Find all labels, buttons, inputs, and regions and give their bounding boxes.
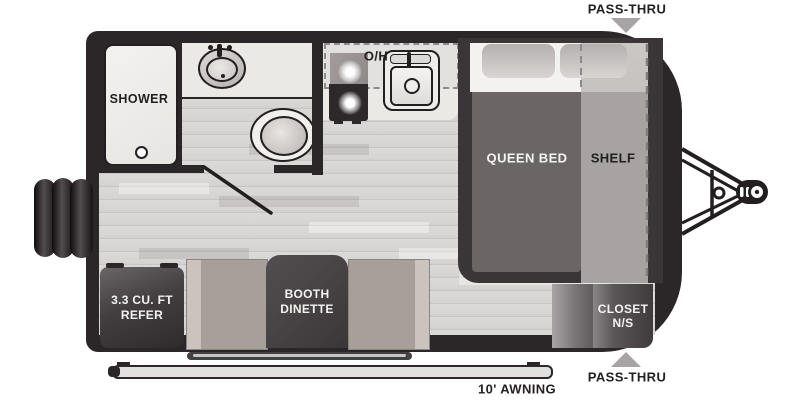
shower-drain [135,146,148,159]
floor-plank-highlight [119,183,209,194]
hitch-jack-wheel [714,188,724,198]
pillow-left [482,44,555,78]
bathroom-faucet-handle-right [227,45,232,50]
stove-burner-top [338,60,362,84]
shelf-label: SHELF [591,151,636,166]
dinette-bench-left [186,259,268,350]
awning-end-cap [108,366,120,377]
refrigerator-label: 3.3 CU. FT REFER [100,267,184,348]
hitch-ball-center [755,190,759,194]
refrigerator-label-line2: REFER [121,308,163,322]
kitchen-faucet [407,52,411,68]
pass-thru-label-top: PASS-THRU [588,2,666,17]
hitch-coupler-slot [746,187,750,197]
shower-label: SHOWER [110,92,169,106]
booth-dinette-label: BOOTH DINETTE [266,255,348,348]
hitch-ball [750,185,765,200]
stove-foot-right [352,120,361,124]
pass-thru-arrow-bottom [611,352,641,367]
bathroom-faucet-handle-left [208,45,213,50]
closet-label-line2: N/S [613,316,634,330]
entry-step [552,284,593,348]
awning-bracket-left [117,362,130,365]
rv-floorplan: PASS-THRU PASS-THRU 10' AWNING SHOWER O/… [0,0,800,400]
floor-plank-shade [139,248,249,259]
bathroom-wall-bottom-right [274,165,312,173]
awning-label: 10' AWNING [478,382,556,397]
bathroom-wall-bottom-left [99,165,204,173]
floor-plank-highlight [309,222,429,233]
pillow-right [560,44,627,78]
floor-plank-shade [219,196,359,207]
toilet-bowl [260,116,308,156]
awning-bar [112,365,553,379]
pass-thru-arrow-top [611,18,641,33]
booth-dinette-label-line1: BOOTH [285,287,330,301]
bathroom-sink-basin [206,57,238,82]
stove-burner-bottom [338,91,362,115]
closet-label: CLOSET N/S [593,284,653,348]
closet-label-line1: CLOSET [598,302,648,316]
pass-thru-label-bottom: PASS-THRU [588,370,666,385]
kitchen-sink-drain [404,78,420,94]
queen-bed-blanket [472,92,581,272]
hitch-coupler [736,180,768,204]
awning-bracket-right [527,362,540,365]
hitch-coupler-slot [740,187,744,197]
dinette-bench-right [348,259,430,350]
booth-dinette-label-line2: DINETTE [280,302,333,316]
refrigerator-label-line1: 3.3 CU. FT [111,293,173,307]
bathroom-sink-drain [221,74,225,78]
entry-step-rail-stripe [193,354,406,357]
hitch [682,149,748,234]
entry-step-rail [187,352,412,360]
stove-foot-left [334,120,343,124]
bathroom-wall-right [312,43,323,175]
overhead-cabinet-label: O/H [364,49,388,64]
queen-bed-label: QUEEN BED [487,151,568,166]
bathroom-faucet [217,44,222,57]
rear-bumper-segment [70,179,93,258]
